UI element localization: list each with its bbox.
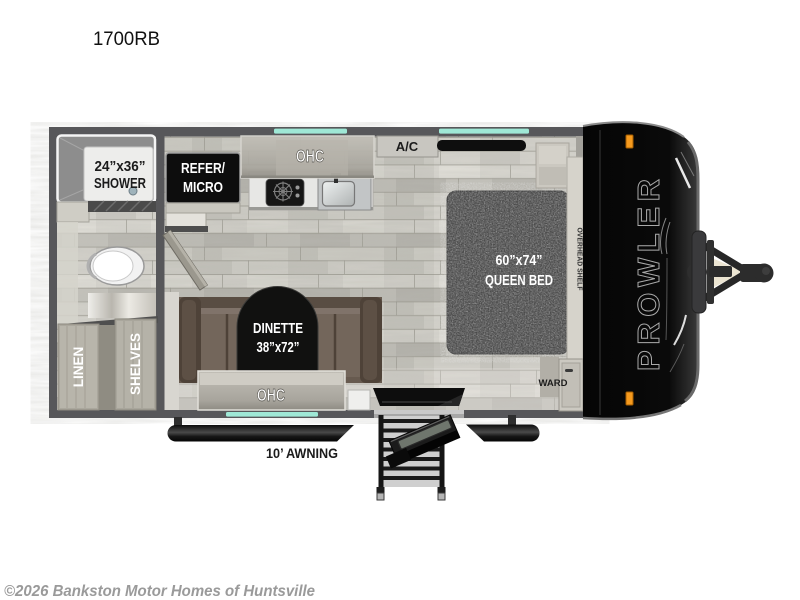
svg-text:OHC: OHC [257,385,285,405]
svg-text:REFER/: REFER/ [181,160,226,177]
svg-text:24”x36”: 24”x36” [95,158,146,175]
svg-text:©2026 Bankston Motor Homes of: ©2026 Bankston Motor Homes of Huntsville [4,583,315,600]
svg-text:WARD: WARD [538,378,567,389]
svg-text:10’ AWNING: 10’ AWNING [266,445,338,461]
svg-text:QUEEN BED: QUEEN BED [485,272,553,289]
svg-text:38”x72”: 38”x72” [257,340,300,356]
svg-text:DINETTE: DINETTE [253,321,303,337]
svg-text:A/C: A/C [396,139,419,154]
svg-text:SHELVES: SHELVES [128,333,143,395]
svg-text:OHC: OHC [296,146,324,166]
svg-text:LINEN: LINEN [71,347,86,388]
svg-text:1700RB: 1700RB [93,29,160,50]
svg-text:MICRO: MICRO [183,179,223,196]
svg-text:SHOWER: SHOWER [94,175,146,192]
svg-text:PROWLER: PROWLER [631,179,666,371]
svg-text:60”x74”: 60”x74” [496,252,543,269]
